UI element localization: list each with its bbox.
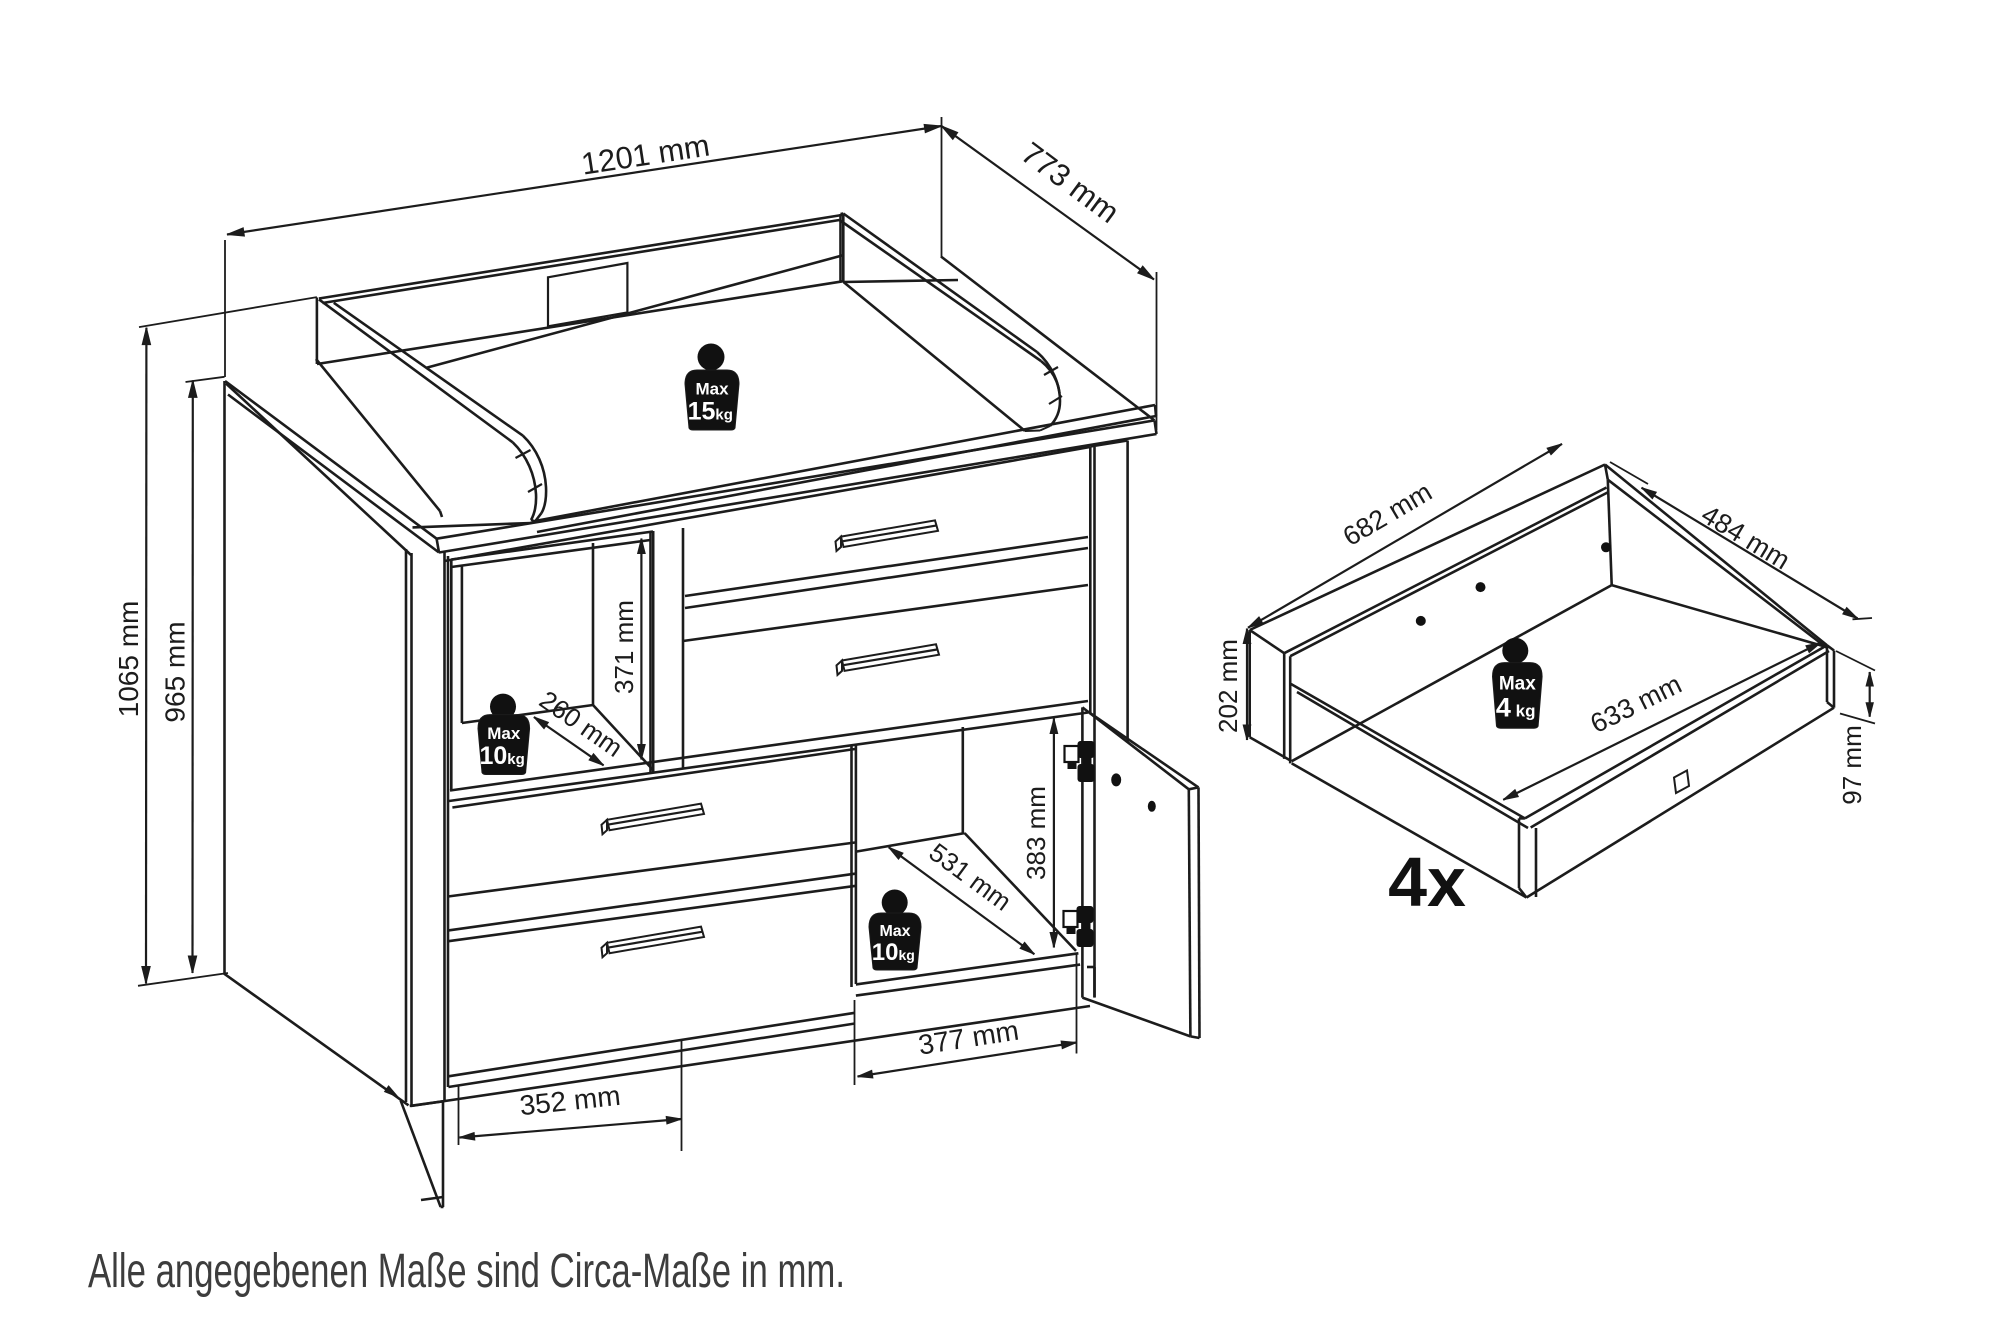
svg-text:4x: 4x: [1388, 843, 1466, 921]
svg-text:352 mm: 352 mm: [518, 1080, 622, 1121]
svg-text:773 mm: 773 mm: [1015, 135, 1126, 230]
svg-text:682 mm: 682 mm: [1338, 477, 1437, 552]
svg-text:371 mm: 371 mm: [609, 600, 639, 694]
svg-text:965 mm: 965 mm: [160, 621, 191, 722]
svg-text:1065 mm: 1065 mm: [113, 601, 144, 718]
svg-text:Max: Max: [695, 379, 729, 398]
svg-text:97 mm: 97 mm: [1837, 725, 1867, 804]
svg-text:Max: Max: [1499, 673, 1536, 694]
svg-text:202 mm: 202 mm: [1213, 639, 1243, 733]
svg-text:633 mm: 633 mm: [1586, 669, 1687, 739]
svg-text:Alle angegebenen Maße sind Cir: Alle angegebenen Maße sind Circa-Maße in…: [88, 1245, 845, 1298]
svg-text:Max: Max: [487, 724, 521, 743]
svg-text:1201 mm: 1201 mm: [579, 128, 712, 182]
svg-text:383 mm: 383 mm: [1021, 786, 1051, 880]
svg-text:531 mm: 531 mm: [924, 837, 1017, 917]
svg-text:Max: Max: [879, 923, 910, 940]
svg-text:484 mm: 484 mm: [1696, 499, 1795, 575]
